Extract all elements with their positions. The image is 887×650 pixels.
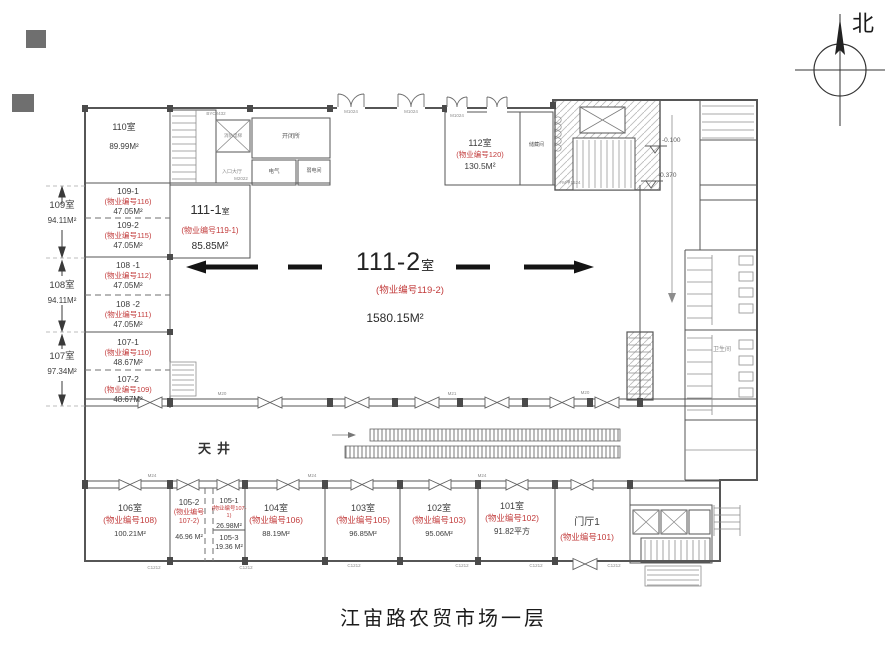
room-110-area: 89.99M²	[90, 142, 158, 152]
dim-109-name: 109室	[36, 200, 88, 212]
door-tag-fm: FM甲1524	[552, 181, 588, 186]
room-107-1: 107-1 (物业编号110) 48.67M²	[90, 337, 166, 368]
room-105-2: 105-2 (物业编号107-2) 46.96 M²	[168, 498, 210, 542]
drawing-title: 江宙路农贸市场一层	[0, 602, 887, 631]
room-102-area: 95.06M²	[403, 529, 475, 539]
room-109-1-area: 47.05M²	[90, 207, 166, 217]
room-111-1-num: 111-1	[190, 202, 221, 217]
room-112: 112室 (物业编号120) 130.5M²	[445, 138, 515, 172]
room-103-name: 103室	[327, 503, 399, 515]
dim-109-area: 94.11M²	[36, 216, 88, 226]
utility-elec-label: 电气	[252, 169, 296, 175]
win-tag-c1212-1: C1212	[140, 566, 168, 571]
door-tag-m1024-3: M1024	[442, 114, 472, 119]
room-107-2-name: 107-2	[90, 374, 166, 385]
room-111-1-area: 85.85M²	[174, 240, 246, 253]
courtyard-louvers	[332, 429, 620, 458]
dim-108-name: 108室	[36, 280, 88, 292]
win-tag-c1212-5: C1212	[522, 564, 550, 569]
room-112-name: 112室	[445, 138, 515, 150]
entry-hall-label: 入口大厅	[208, 170, 256, 176]
fire-elevator-label: 消防电梯	[214, 134, 252, 139]
room-110: 110室 89.99M²	[90, 122, 158, 152]
door-tag-m2022: M2022	[228, 177, 254, 182]
room-102-code: (物业编号103)	[403, 515, 475, 526]
room-109-2-code: (物业编号115)	[90, 231, 166, 241]
room-104-area: 88.19M²	[236, 529, 316, 539]
room-109-2-area: 47.05M²	[90, 241, 166, 251]
wc-label: 卫生间	[700, 347, 744, 354]
door-tag-m20-1: M20	[210, 392, 234, 397]
room-101-code: (物业编号102)	[476, 513, 548, 524]
door-tag-m1024-1: M1024	[336, 110, 366, 115]
stamp-marks	[12, 30, 46, 112]
room-108-1-name: 108 -1	[90, 260, 166, 271]
storage-label: 储藏间	[520, 143, 553, 149]
win-tag-c1212-3: C1212	[340, 564, 368, 569]
door-tag-byc: BYC2432	[196, 112, 236, 117]
room-109-1: 109-1 (物业编号116) 47.05M²	[90, 186, 166, 217]
room-107-2: 107-2 (物业编号109) 48.67M²	[90, 374, 166, 405]
room-108-1-code: (物业编号112)	[90, 271, 166, 281]
win-tag-c1212-6: C1212	[600, 564, 628, 569]
corridor-arrow	[668, 293, 676, 303]
room-101-area: 91.82平方	[476, 527, 548, 537]
utility-weak-label: 弱电间	[298, 169, 330, 175]
room-102-name: 102室	[403, 503, 475, 515]
room-108-2-area: 47.05M²	[90, 320, 166, 330]
room-106: 106室 (物业编号108) 100.21M²	[93, 503, 167, 538]
dim-109: 109室 94.11M²	[36, 200, 88, 227]
hall-111-2-num: 111-2	[356, 248, 421, 276]
room-104-code: (物业编号106)	[236, 515, 316, 526]
room-112-code: (物业编号120)	[445, 150, 515, 160]
dim-108: 108室 94.11M²	[36, 280, 88, 307]
room-101-name: 101室	[476, 501, 548, 513]
hall-111-2-code: (物业编号119-2)	[355, 285, 465, 297]
room-111-1-code: (物业编号119-1)	[174, 226, 246, 236]
room-107-1-area: 48.67M²	[90, 358, 166, 368]
room-105-3-area: 19.36 M²	[211, 543, 247, 552]
room-105-2-code: (物业编号107-2)	[168, 508, 210, 526]
room-112-area: 130.5M²	[445, 161, 515, 172]
courtyard-label: 天井	[198, 438, 236, 457]
room-111-1-suffix: 室	[222, 207, 230, 216]
room-108-2: 108 -2 (物业编号111) 47.05M²	[90, 299, 166, 330]
room-109-2: 109-2 (物业编号115) 47.05M²	[90, 220, 166, 251]
win-tag-c1212-4: C1212	[448, 564, 476, 569]
room-106-name: 106室	[93, 503, 167, 515]
room-101: 101室 (物业编号102) 91.82平方	[476, 501, 548, 537]
door-tag-m24-3: M24	[470, 474, 494, 479]
north-label: 北	[852, 6, 884, 38]
room-103-code: (物业编号105)	[327, 515, 399, 526]
room-104: 104室 (物业编号106) 88.19M²	[236, 503, 316, 538]
room-104-name: 104室	[236, 503, 316, 515]
door-tag-m24-1: M24	[140, 474, 164, 479]
room-103: 103室 (物业编号105) 96.85M²	[327, 503, 399, 538]
dim-107-name: 107室	[36, 351, 88, 363]
room-109-1-name: 109-1	[90, 186, 166, 197]
room-108-1: 108 -1 (物业编号112) 47.05M²	[90, 260, 166, 291]
hall-111-2-name: 111-2室	[330, 246, 460, 279]
room-107-2-code: (物业编号109)	[90, 385, 166, 395]
room-111-1-name: 111-1室	[174, 200, 246, 221]
room-lobby-code: (物业编号101)	[550, 532, 624, 543]
room-106-area: 100.21M²	[93, 529, 167, 539]
room-lobby-name: 门厅1	[550, 516, 624, 529]
room-108-1-area: 47.05M²	[90, 281, 166, 291]
room-102: 102室 (物业编号103) 95.06M²	[403, 503, 475, 538]
room-lobby: 门厅1 (物业编号101)	[550, 516, 624, 543]
room-106-code: (物业编号108)	[93, 515, 167, 526]
door-tag-m1024-2: M1024	[396, 110, 426, 115]
room-105-2-name: 105-2	[168, 498, 210, 508]
door-tag-m24-2: M24	[300, 474, 324, 479]
room-105-2-area: 46.96 M²	[168, 533, 210, 542]
dim-107-area: 97.34M²	[36, 367, 88, 377]
door-tag-m21: M21	[440, 392, 464, 397]
room-107-2-area: 48.67M²	[90, 395, 166, 405]
escalator-hatch-zone	[555, 100, 660, 190]
level-marker-2: -0.370	[658, 172, 676, 179]
room-109-2-name: 109-2	[90, 220, 166, 231]
hall-111-2-suffix: 室	[421, 258, 434, 273]
floorplan-page: 北 110室 89.99M² 109-1 (物业编号116) 47.05M² 1…	[0, 0, 887, 650]
utility-big-label: 开闭所	[252, 134, 330, 141]
level-marker-1: -0.100	[662, 137, 680, 144]
room-111-1: 111-1室 (物业编号119-1) 85.85M²	[174, 200, 246, 253]
room-108-2-name: 108 -2	[90, 299, 166, 310]
dim-108-area: 94.11M²	[36, 296, 88, 306]
room-107-1-name: 107-1	[90, 337, 166, 348]
hall-111-2-area: 1580.15M²	[340, 311, 450, 327]
room-110-name: 110室	[90, 122, 158, 134]
market-doors	[119, 396, 619, 570]
room-109-1-code: (物业编号116)	[90, 197, 166, 207]
room-107-1-code: (物业编号110)	[90, 348, 166, 358]
dim-107: 107室 97.34M²	[36, 351, 88, 378]
door-tag-m20-2: M20	[573, 391, 597, 396]
win-tag-c1212-2: C1212	[232, 566, 260, 571]
room-108-2-code: (物业编号111)	[90, 310, 166, 320]
room-103-area: 96.85M²	[327, 529, 399, 539]
